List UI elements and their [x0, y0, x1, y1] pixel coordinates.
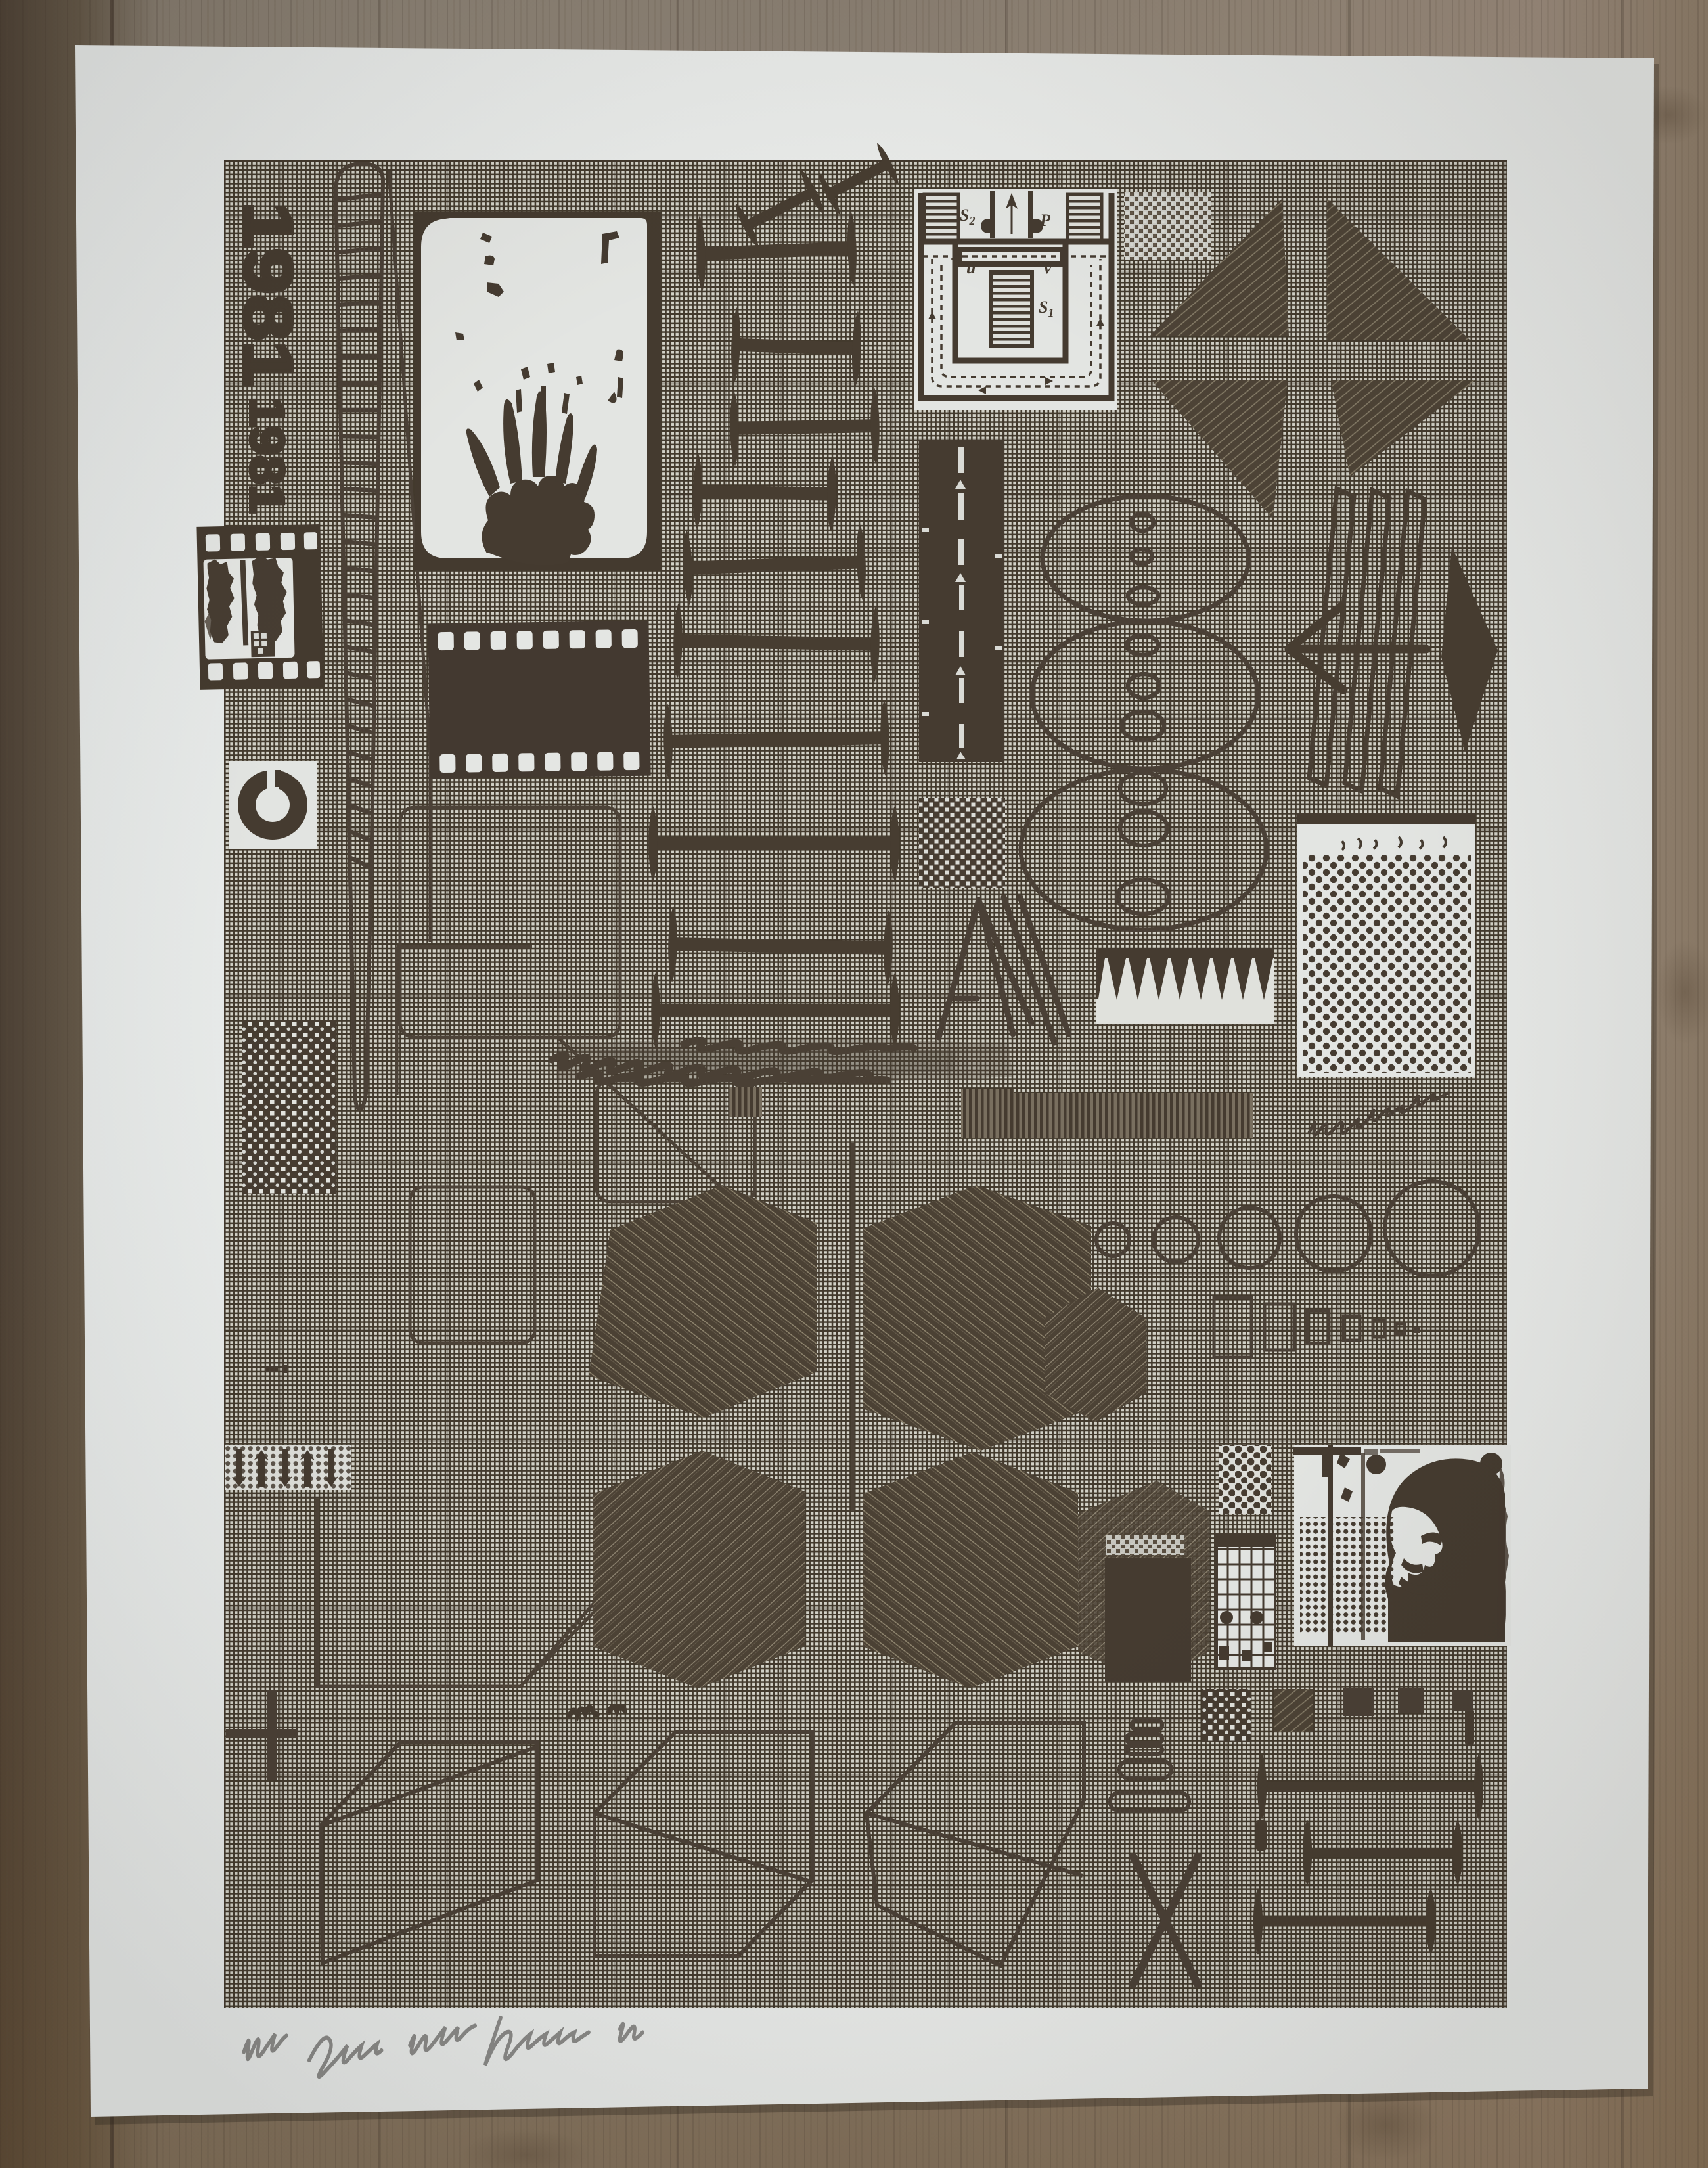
svg-text:P: P [1039, 211, 1051, 230]
svg-text:u: u [966, 258, 976, 277]
svg-text:v: v [1044, 258, 1052, 277]
svg-text:1981: 1981 [230, 202, 306, 387]
svg-text:1981: 1981 [240, 397, 294, 514]
